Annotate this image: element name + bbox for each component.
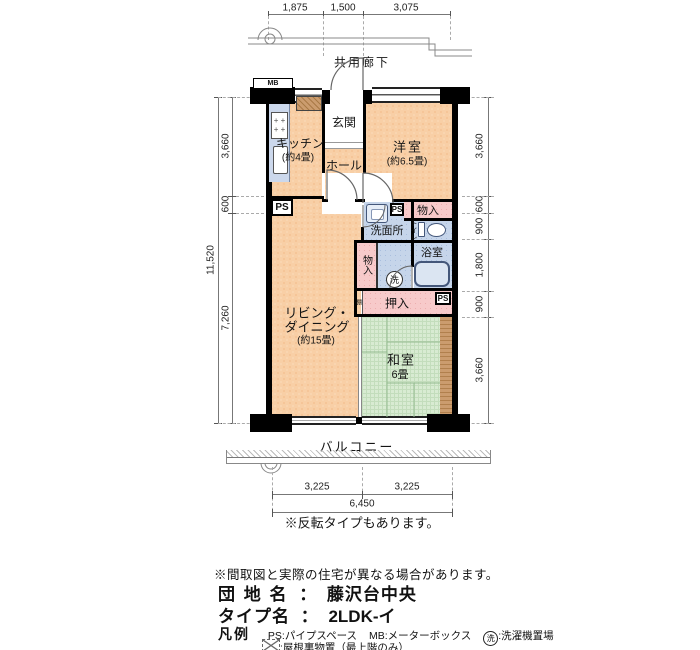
wall-corner-bl: [250, 414, 292, 432]
washroom-label: 洗面所: [371, 222, 404, 238]
dim-left-1: 3,660: [221, 133, 232, 158]
washbasin-bowl: [371, 209, 384, 220]
dim-line-right: [488, 97, 489, 423]
ps-box-kitchen: PS: [271, 199, 293, 216]
ext-line: [236, 196, 264, 197]
corridor-arc-symbol: [258, 28, 282, 40]
ps-box-oshiire: PS: [435, 292, 451, 305]
washer-label: 洗: [390, 273, 399, 286]
tick: [228, 213, 236, 214]
toilet-bowl-icon: [427, 223, 446, 237]
dim-left-outer: 11,520: [206, 245, 217, 275]
ext-line: [363, 16, 364, 56]
wall-hall-bottom-c: [355, 199, 365, 202]
mb-label: MB: [268, 80, 279, 87]
storage-top-label: 物入: [417, 202, 439, 218]
ext-line: [462, 239, 494, 240]
western-room-size-label: (約6.5畳): [387, 153, 428, 168]
wall-thin-storage-washer: [376, 243, 378, 288]
corridor-line-1: [248, 38, 472, 50]
ext-line: [323, 16, 324, 56]
bath-label: 浴室: [421, 244, 443, 260]
dim-right-3: 900: [475, 218, 486, 235]
dim-bottom-1: 3,225: [304, 482, 329, 493]
toilet-tank-icon: [418, 222, 425, 237]
ps-label: PS: [275, 202, 288, 213]
tick: [272, 491, 273, 499]
legend-title: 凡例: [218, 626, 250, 642]
tick: [272, 509, 273, 517]
balcony-railing-end-l: [226, 450, 227, 464]
dim-top-2: 1,500: [330, 3, 355, 14]
wood-strip: [440, 317, 452, 417]
ps-box-washroom: PS: [390, 203, 404, 216]
wall-hall-bottom-l: [322, 199, 328, 202]
dim-right-6: 3,660: [475, 357, 486, 382]
wall-top-seg: [322, 90, 330, 104]
dim-line-left-outer: [218, 97, 219, 423]
tick: [452, 509, 453, 517]
wall-oshiire-bottom: [354, 314, 452, 317]
meter-box: MB: [253, 78, 293, 89]
wall-corner-br: [427, 414, 470, 432]
dim-top-1: 1,875: [282, 3, 307, 14]
window-western: [372, 87, 440, 103]
shelf-label: 棚: [354, 299, 363, 305]
entrance-label: 玄関: [332, 114, 356, 131]
window-washitsu-balcony: [362, 416, 427, 425]
corridor-arc-inner: [265, 34, 275, 44]
ext-line: [450, 16, 451, 40]
ps-label: PS: [392, 205, 403, 214]
bathtub-icon: [414, 261, 450, 287]
japanese-room-size-label: 6畳: [391, 366, 408, 382]
dim-line-top: [268, 14, 450, 15]
oshiire-label: 押入: [385, 295, 409, 312]
floorplan-page: 1,875 1,500 3,075 共用廊下 11,520 3,660 600 …: [0, 0, 700, 650]
storage-left-label: 物入: [359, 255, 374, 275]
wall-washroom-left: [361, 227, 364, 240]
dim-line-left: [232, 97, 233, 423]
ext-line: [462, 196, 494, 197]
dim-bottom-total: 6,450: [349, 499, 374, 510]
window-living-balcony: [292, 416, 356, 425]
wall-oshiire-top: [354, 288, 452, 291]
wall-corner-tr: [440, 87, 470, 104]
dim-bottom-2: 3,225: [394, 482, 419, 493]
wall-washer-bath: [411, 243, 414, 267]
legend-washer-symbol: 洗: [487, 633, 495, 644]
door-swing-area: [326, 173, 392, 201]
dim-top-3: 3,075: [393, 3, 418, 14]
dim-right-5: 900: [475, 296, 486, 313]
toilet-label: トイレ: [408, 220, 418, 241]
living-size-label: (約15畳): [297, 332, 335, 347]
fusuma-sliding-door: [358, 317, 362, 417]
dim-left-3: 7,260: [221, 305, 232, 330]
entrance-step-line: [325, 142, 363, 143]
legend-attic-text: :屋根裏物置（最上階のみ）: [280, 642, 409, 650]
balcony-railing-line: [226, 463, 490, 464]
wall-entrance-western: [363, 103, 366, 173]
dim-left-2: 600: [221, 196, 232, 213]
wall-corner-tl: [250, 87, 295, 104]
hall-label: ホール: [326, 157, 362, 174]
legend-washer-icon: 洗: [483, 631, 498, 646]
tick: [452, 491, 453, 499]
balcony-drain-symbol: [261, 463, 281, 473]
shoe-cabinet: [296, 96, 322, 111]
ext-line: [462, 291, 494, 292]
ext-line: [462, 317, 494, 318]
wall-top-seg: [363, 90, 372, 104]
reverse-note: ※反転タイプもあります。: [285, 513, 440, 532]
entrance-step-line2: [325, 148, 363, 149]
wall-storage-left-wall: [354, 243, 357, 317]
wall-right: [452, 90, 458, 423]
balcony-railing-end-r: [490, 450, 491, 464]
washer-icon: 洗: [386, 271, 403, 288]
dim-right-1: 3,660: [475, 133, 486, 158]
ext-line: [236, 213, 264, 214]
ext-line: [462, 213, 494, 214]
legend-attic-icon: [262, 639, 280, 650]
ext-line: [268, 16, 269, 40]
dim-right-4: 1,800: [475, 252, 486, 277]
legend-washer-text: :洗濯機置場: [498, 630, 553, 642]
ps-label: PS: [438, 294, 449, 303]
kitchen-size-label: (約4畳): [282, 149, 314, 164]
washbasin-icon: [366, 204, 388, 223]
legend-row-2: :屋根裏物置（最上階のみ）: [262, 639, 409, 650]
corridor-label: 共用廊下: [334, 54, 390, 71]
dim-right-2: 600: [475, 196, 486, 213]
wall-washroom-bath: [354, 240, 452, 243]
balcony-railing-hatch: [226, 450, 490, 458]
